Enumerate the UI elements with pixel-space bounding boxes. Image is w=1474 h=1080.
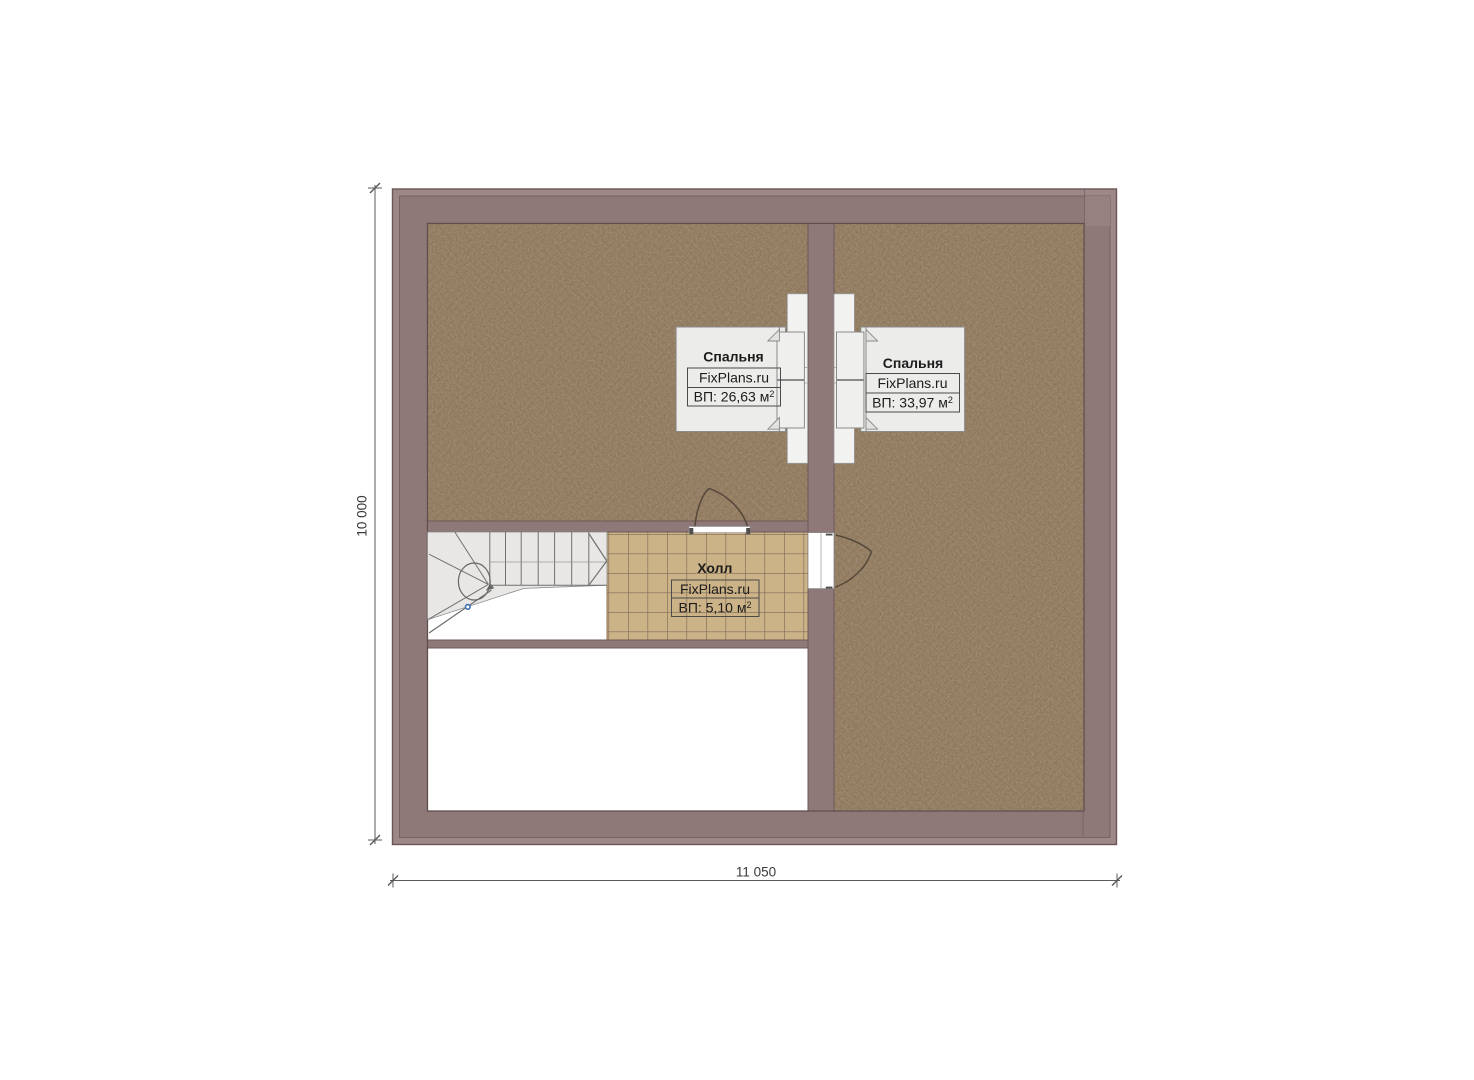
svg-text:Холл: Холл xyxy=(697,560,732,576)
svg-text:Спальня: Спальня xyxy=(883,355,943,371)
svg-text:Спальня: Спальня xyxy=(703,349,763,365)
svg-text:FixPlans.ru: FixPlans.ru xyxy=(877,375,947,391)
svg-text:FixPlans.ru: FixPlans.ru xyxy=(680,581,750,597)
svg-text:ВП: 26,63 м2: ВП: 26,63 м2 xyxy=(694,389,775,405)
svg-text:FixPlans.ru: FixPlans.ru xyxy=(699,370,769,386)
svg-text:10 000: 10 000 xyxy=(355,495,370,536)
svg-text:ВП: 5,10 м2: ВП: 5,10 м2 xyxy=(679,600,752,616)
svg-text:11 050: 11 050 xyxy=(736,865,776,880)
svg-text:ВП: 33,97 м2: ВП: 33,97 м2 xyxy=(872,395,953,411)
